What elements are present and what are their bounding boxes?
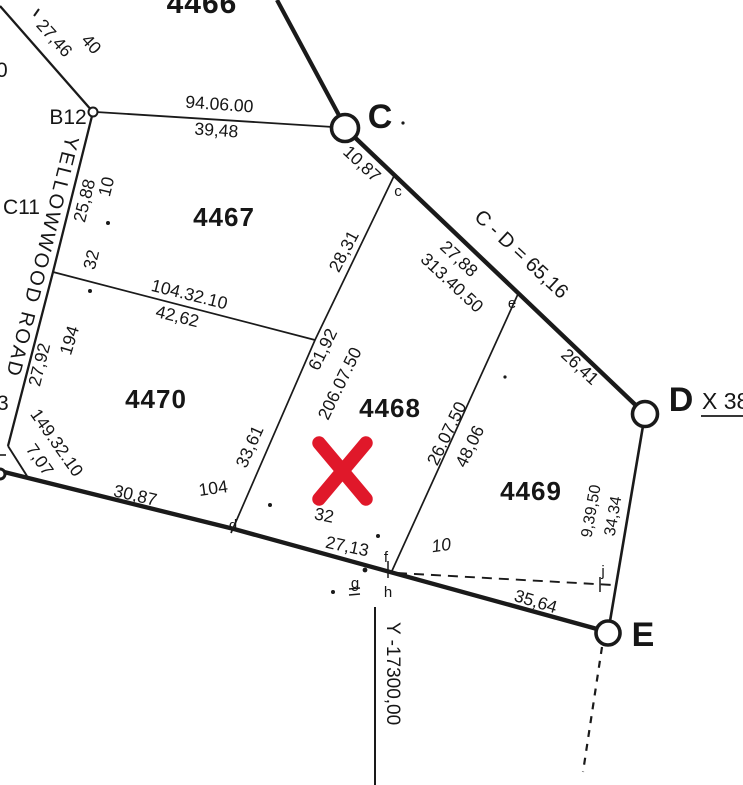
- station-c-label: C: [368, 98, 393, 136]
- tick-road-32: 32: [79, 248, 103, 272]
- point-h-label: h: [384, 584, 392, 601]
- edge-label-top: 0: [0, 59, 8, 82]
- station-c11-label: C11: [3, 196, 40, 219]
- station-e-label: E: [632, 616, 655, 654]
- parcel-4470-label: 4470: [125, 384, 187, 414]
- station-b12-marker: [89, 108, 98, 117]
- survey-diagram: 4466 4467 4468 4469 4470 B12 C11 C D E X…: [0, 0, 743, 785]
- point-c-label: c: [394, 183, 402, 200]
- grid-y-label: Y -17300,00: [382, 622, 403, 725]
- parcel-4467-label: 4467: [193, 202, 255, 232]
- distance-cd-total: 61,92: [304, 325, 341, 373]
- peg-dot: [401, 121, 404, 124]
- bearing-b12-c: 94.06.00: [185, 92, 255, 117]
- distance-road-upper: 25,88: [69, 177, 99, 224]
- peg-dot: [268, 503, 272, 507]
- station-e-marker: [596, 621, 620, 645]
- parcel-4468-label: 4468: [359, 393, 421, 423]
- distance-c-c: 10,87: [339, 141, 385, 185]
- grid-equals-tick: [349, 594, 360, 595]
- station-d-label: D: [669, 381, 694, 419]
- station-d-x-coordinate: X 38: [702, 388, 743, 414]
- distance-b12-c: 39,48: [194, 119, 239, 142]
- parcel-4469-label: 4469: [500, 476, 562, 506]
- point-j-label: j: [600, 563, 604, 580]
- width-nw-road: 40: [78, 30, 106, 58]
- edge-label-mid: 3: [0, 392, 9, 415]
- red-x-mark: [319, 443, 366, 499]
- bearing-d-e: 9,39,50: [579, 483, 605, 539]
- boundary-line-4466-c: [277, 0, 341, 119]
- peg-dot: [376, 534, 380, 538]
- point-d-label: d: [229, 517, 237, 534]
- peg-dot: [88, 289, 92, 293]
- station-b12-label: B12: [49, 106, 86, 129]
- corner-point-marker: [0, 469, 5, 479]
- distance-d-e: 34,34: [602, 495, 626, 537]
- peg-dot: [363, 568, 368, 573]
- distance-nw: 27,46: [32, 15, 76, 61]
- point-g-label: g: [351, 575, 359, 592]
- peg-dot: [503, 375, 506, 378]
- tick-south-32: 32: [313, 503, 336, 526]
- tick-south-10: 10: [430, 534, 452, 557]
- station-c-marker: [332, 115, 359, 142]
- cadastral-map-canvas[interactable]: 4466 4467 4468 4469 4470 B12 C11 C D E X…: [0, 0, 743, 785]
- small-tick-nw: [34, 9, 39, 16]
- offset-road-upper: 10: [94, 174, 118, 198]
- station-d-marker: [633, 402, 658, 427]
- tick-road-194: 194: [55, 323, 83, 357]
- distance-cross-line: 42,62: [154, 301, 201, 331]
- parcel-4466-label: 4466: [167, 0, 238, 20]
- peg-dot: [331, 590, 335, 594]
- peg-dot: [106, 221, 110, 225]
- dashed-line-below-e: [583, 647, 602, 772]
- tick-south-104: 104: [197, 476, 229, 500]
- cd-length-equation: C - D = 65,16: [470, 206, 572, 304]
- point-e-label: e: [508, 295, 516, 312]
